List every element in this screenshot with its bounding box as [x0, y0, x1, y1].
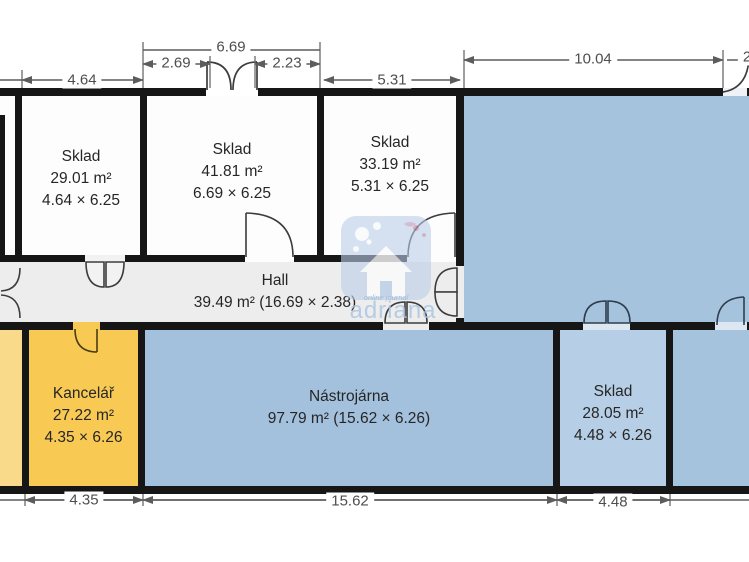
label-sklad-1: Sklad 29.01 m² 4.64 × 6.25	[22, 146, 140, 212]
room-area: 28.05 m²	[560, 403, 666, 425]
dim-label-top-2-23: 2.23	[267, 55, 306, 72]
door-hall-left-icon	[1, 268, 20, 318]
label-sklad-3: Sklad 33.19 m² 5.31 × 6.25	[324, 132, 456, 198]
room-name: Sklad	[147, 139, 317, 161]
room-name: Hall	[130, 270, 420, 292]
room-area: 33.19 m²	[324, 154, 456, 176]
dim-label-top-10-04: 10.04	[569, 51, 617, 68]
room-name: Nástrojárna	[145, 386, 553, 408]
label-sklad-2: Sklad 41.81 m² 6.69 × 6.25	[147, 139, 317, 205]
room-dims: 4.35 × 6.26	[29, 427, 138, 449]
double-door-hall-blue-icon	[435, 268, 457, 316]
door-sklad3-icon	[408, 213, 455, 257]
room-name: Sklad	[22, 146, 140, 168]
room-dims: 5.31 × 6.25	[324, 176, 456, 198]
dim-label-top-6-69: 6.69	[211, 39, 250, 56]
double-door-sklad4-icon	[584, 301, 630, 323]
door-sklad2-icon	[246, 213, 293, 257]
label-hall: Hall 39.49 m² (16.69 × 2.38)	[130, 270, 420, 314]
room-dims: 4.48 × 6.26	[560, 425, 666, 447]
floor-plan: 4.64 2.69 6.69 2.23 5.31 10.04 2 4.35 15…	[0, 0, 749, 562]
room-dims: 4.64 × 6.25	[22, 190, 140, 212]
dim-label-bottom-4-48: 4.48	[593, 494, 632, 511]
room-area: 41.81 m²	[147, 161, 317, 183]
room-dims: 6.69 × 6.25	[147, 183, 317, 205]
dim-label-top-4-64: 4.64	[62, 72, 101, 89]
room-area: 27.22 m²	[29, 405, 138, 427]
door-kancelar-icon	[75, 329, 97, 352]
double-door-top-icon	[207, 62, 257, 90]
label-sklad-4: Sklad 28.05 m² 4.48 × 6.26	[560, 381, 666, 447]
dim-label-bottom-15-62: 15.62	[326, 493, 374, 510]
dim-label-bottom-4-35: 4.35	[64, 492, 103, 509]
double-door-sklad1-icon	[86, 262, 124, 287]
room-name: Kancelář	[29, 383, 138, 405]
room-area: 29.01 m²	[22, 168, 140, 190]
door-right-room-icon	[717, 297, 744, 325]
dim-label-top-5-31: 5.31	[372, 72, 411, 89]
label-nastrojarna: Nástrojárna 97.79 m² (15.62 × 6.26)	[145, 386, 553, 430]
label-kancelar: Kancelář 27.22 m² 4.35 × 6.26	[29, 383, 138, 449]
dim-label-top-2-69: 2.69	[156, 55, 195, 72]
dim-label-top-2-cut: 2	[738, 49, 749, 66]
room-name: Sklad	[560, 381, 666, 403]
room-area: 97.79 m² (15.62 × 6.26)	[145, 408, 553, 430]
room-name: Sklad	[324, 132, 456, 154]
room-area: 39.49 m² (16.69 × 2.38)	[130, 292, 420, 314]
